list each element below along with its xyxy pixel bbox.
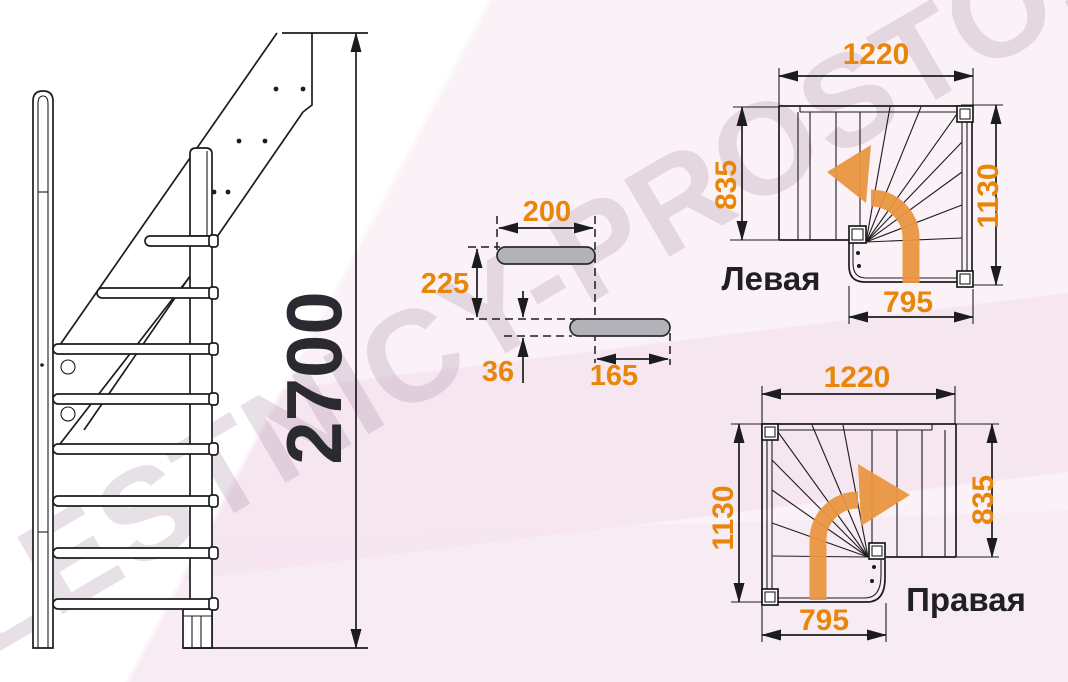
right-plan-landing [778, 560, 885, 602]
right-plan-caption: Правая [906, 581, 1026, 618]
staircase-diagram: LESTNICY-PROSTO.RU [0, 0, 1068, 682]
staircase-drawing-canvas: LESTNICY-PROSTO.RU [0, 0, 1068, 682]
dim-tread-thickness: 36 [482, 356, 514, 388]
watermark: LESTNICY-PROSTO.RU [0, 0, 1068, 682]
left-plan-caption: Левая [722, 260, 821, 297]
right-plan-turn-arrowhead [858, 464, 910, 526]
left-plan-depth-label: 835 [710, 160, 743, 210]
watermark-text: LESTNICY-PROSTO.RU [0, 0, 1068, 682]
upper-tread [497, 247, 595, 264]
middle-post [190, 148, 212, 236]
right-plan-exit-label: 795 [799, 604, 849, 637]
right-plan-length-label: 1130 [707, 485, 740, 550]
left-newel-post [33, 91, 53, 648]
dim-step-rise: 225 [421, 268, 469, 300]
right-plan-width-label: 1220 [824, 361, 891, 394]
side-elevation-view: 2700 [33, 33, 368, 648]
base-foot [183, 609, 212, 648]
lower-tread [570, 319, 670, 336]
right-plan-turn-arrow [818, 500, 858, 600]
plan-view-right: 1220 1130 835 795 Правая [707, 361, 1026, 642]
dim-total-height: 2700 [270, 291, 358, 465]
dim-tread-overlap: 165 [590, 360, 638, 392]
stringer-top-end [303, 33, 312, 112]
left-plan-length-label: 1130 [972, 163, 1005, 228]
dim-tread-depth: 200 [523, 196, 571, 228]
stringer-upper-edge [55, 33, 277, 352]
right-plan-depth-label: 835 [967, 475, 1000, 525]
left-plan-width-label: 1220 [843, 38, 910, 71]
left-plan-exit-label: 795 [883, 286, 933, 319]
